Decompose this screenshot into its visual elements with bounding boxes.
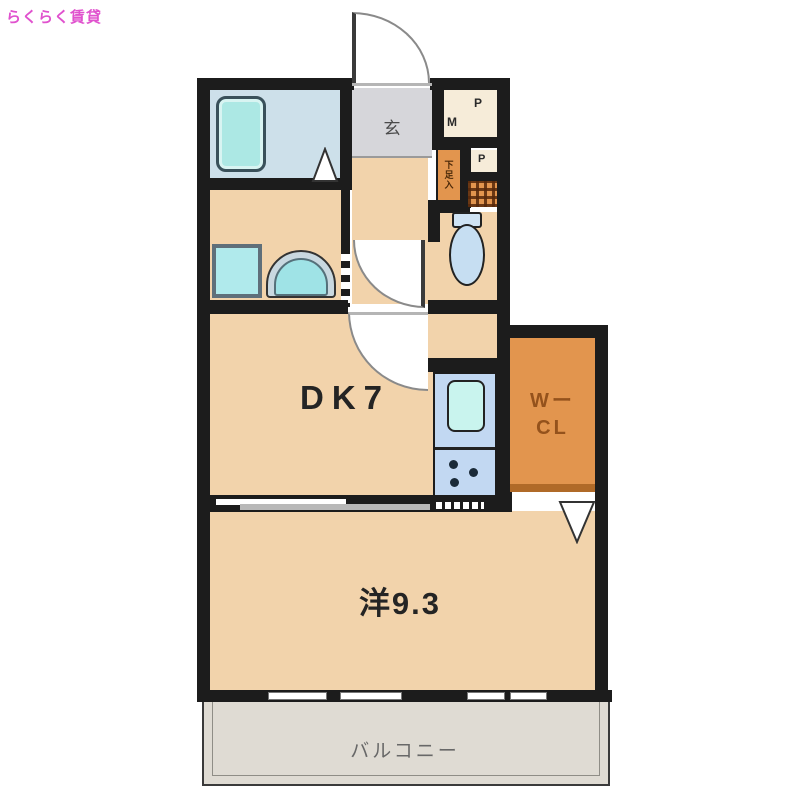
wall-segment bbox=[444, 137, 510, 148]
balcony-label: バルコニー bbox=[300, 735, 510, 763]
wcl-doorsill bbox=[510, 484, 595, 492]
sliding-door-dashes bbox=[436, 502, 484, 509]
wall-segment bbox=[497, 325, 607, 338]
wall-segment bbox=[340, 88, 352, 190]
meter-p-label: P bbox=[474, 96, 482, 110]
wcl-label: Wー CL bbox=[510, 388, 595, 442]
pipe-space-hatch bbox=[468, 181, 497, 207]
wall-segment bbox=[595, 325, 608, 702]
pipe-p-label: P bbox=[478, 153, 485, 165]
watermark-text: らくらく賃貸 bbox=[6, 6, 102, 27]
window bbox=[467, 692, 505, 700]
wall-segment bbox=[497, 492, 512, 512]
stove-burner-icon bbox=[449, 460, 458, 469]
western-room-label: 洋9.3 bbox=[290, 578, 510, 622]
wall-segment bbox=[428, 212, 440, 242]
wall-segment bbox=[341, 190, 350, 247]
genkan-step-line bbox=[352, 156, 432, 158]
sliding-door-panel bbox=[240, 504, 430, 510]
window bbox=[340, 692, 402, 700]
washroom-doorway-dashed bbox=[341, 247, 350, 307]
wall-segment bbox=[197, 300, 348, 314]
wcl-label-line1: Wー bbox=[510, 388, 595, 415]
window bbox=[510, 692, 547, 700]
wall-segment bbox=[432, 88, 444, 150]
toilet-bowl-icon bbox=[449, 224, 485, 286]
bathtub-icon bbox=[216, 96, 266, 172]
stove-burner-icon bbox=[469, 468, 478, 477]
stove-burner-icon bbox=[450, 478, 459, 487]
wall-segment bbox=[428, 358, 500, 372]
entrance-threshold bbox=[352, 83, 432, 86]
closet-door-icon bbox=[558, 500, 596, 544]
shoe-cabinet: 下足入 bbox=[436, 148, 462, 202]
wash-basin-bowl bbox=[274, 258, 328, 296]
shoe-cabinet-label: 下足入 bbox=[443, 160, 456, 190]
bathroom-door-icon bbox=[311, 147, 339, 183]
wall-segment bbox=[428, 300, 510, 314]
meter-box-floor bbox=[444, 90, 497, 137]
genkan-label: 玄 bbox=[352, 108, 432, 144]
floorplan-image: らくらく賃貸 下足入 bbox=[0, 0, 800, 800]
dk-room-label: DK7 bbox=[235, 375, 455, 421]
wall-segment bbox=[197, 78, 210, 702]
wcl-label-line2: CL bbox=[510, 415, 595, 442]
window bbox=[268, 692, 327, 700]
meter-m-label: M bbox=[447, 115, 457, 129]
entrance-door-arc bbox=[352, 12, 430, 83]
wall-segment bbox=[197, 690, 612, 702]
washing-machine-icon bbox=[212, 244, 262, 298]
wall-segment bbox=[470, 172, 497, 181]
counter-divider bbox=[435, 447, 495, 450]
wall-segment bbox=[197, 78, 354, 90]
